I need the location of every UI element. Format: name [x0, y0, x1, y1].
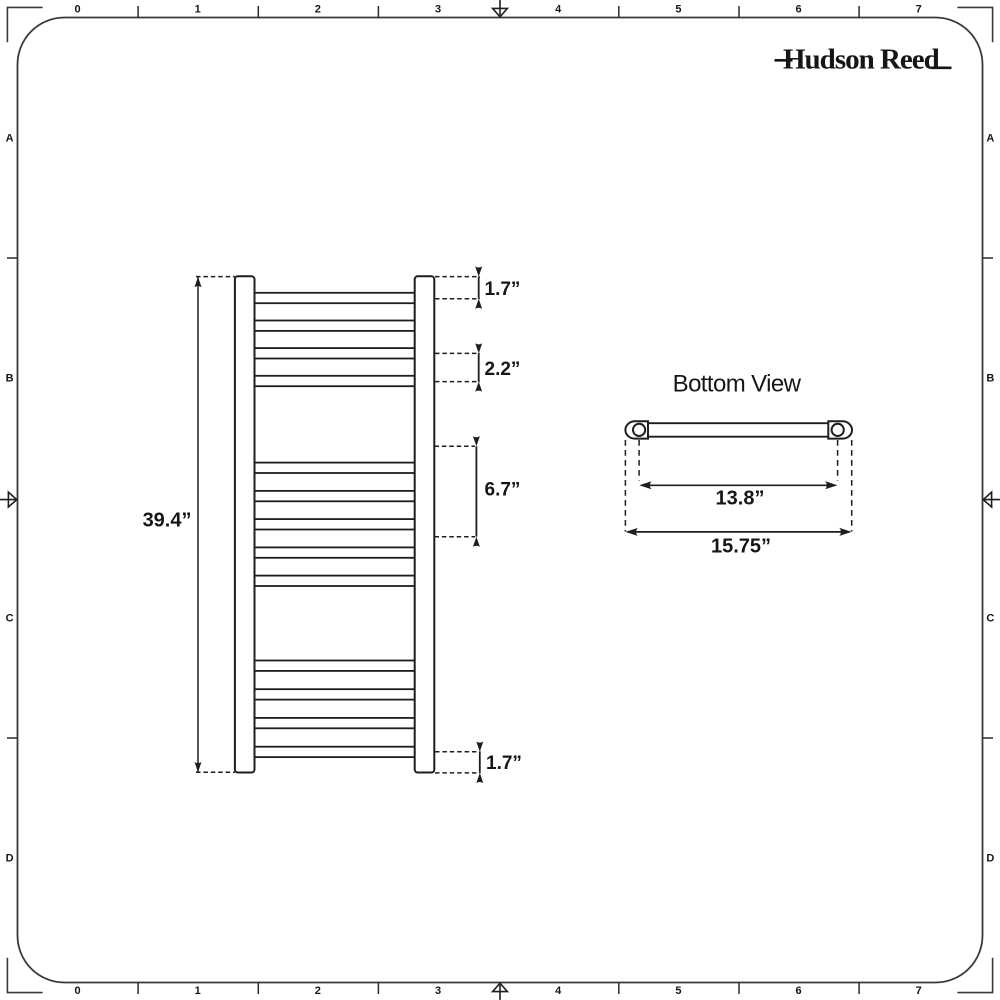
- svg-text:5: 5: [675, 985, 681, 997]
- svg-text:1: 1: [195, 4, 201, 16]
- svg-text:13.8”: 13.8”: [716, 488, 765, 510]
- svg-text:B: B: [6, 373, 14, 385]
- svg-text:1.7”: 1.7”: [486, 753, 522, 774]
- svg-text:0: 0: [74, 985, 80, 997]
- svg-text:3: 3: [435, 985, 441, 997]
- svg-text:6.7”: 6.7”: [485, 480, 521, 501]
- svg-text:15.75”: 15.75”: [711, 536, 771, 558]
- svg-text:C: C: [986, 613, 994, 625]
- svg-text:Bottom View: Bottom View: [673, 371, 802, 398]
- svg-text:D: D: [986, 853, 994, 865]
- svg-text:0: 0: [74, 4, 80, 16]
- svg-text:D: D: [6, 853, 14, 865]
- svg-text:Hudson Reed: Hudson Reed: [783, 44, 940, 76]
- svg-text:7: 7: [916, 985, 922, 997]
- svg-text:2.2”: 2.2”: [485, 359, 521, 380]
- svg-text:1.7”: 1.7”: [485, 279, 521, 300]
- svg-text:6: 6: [795, 4, 801, 16]
- svg-text:4: 4: [555, 4, 562, 16]
- svg-text:5: 5: [675, 4, 681, 16]
- svg-text:6: 6: [795, 985, 801, 997]
- svg-text:2: 2: [315, 985, 321, 997]
- svg-text:B: B: [986, 373, 994, 385]
- svg-text:1: 1: [195, 985, 201, 997]
- svg-text:3: 3: [435, 4, 441, 16]
- svg-text:A: A: [6, 133, 14, 145]
- svg-text:4: 4: [555, 985, 562, 997]
- svg-text:7: 7: [916, 4, 922, 16]
- svg-text:2: 2: [315, 4, 321, 16]
- svg-text:C: C: [6, 613, 14, 625]
- svg-text:A: A: [986, 133, 994, 145]
- svg-text:39.4”: 39.4”: [143, 510, 192, 532]
